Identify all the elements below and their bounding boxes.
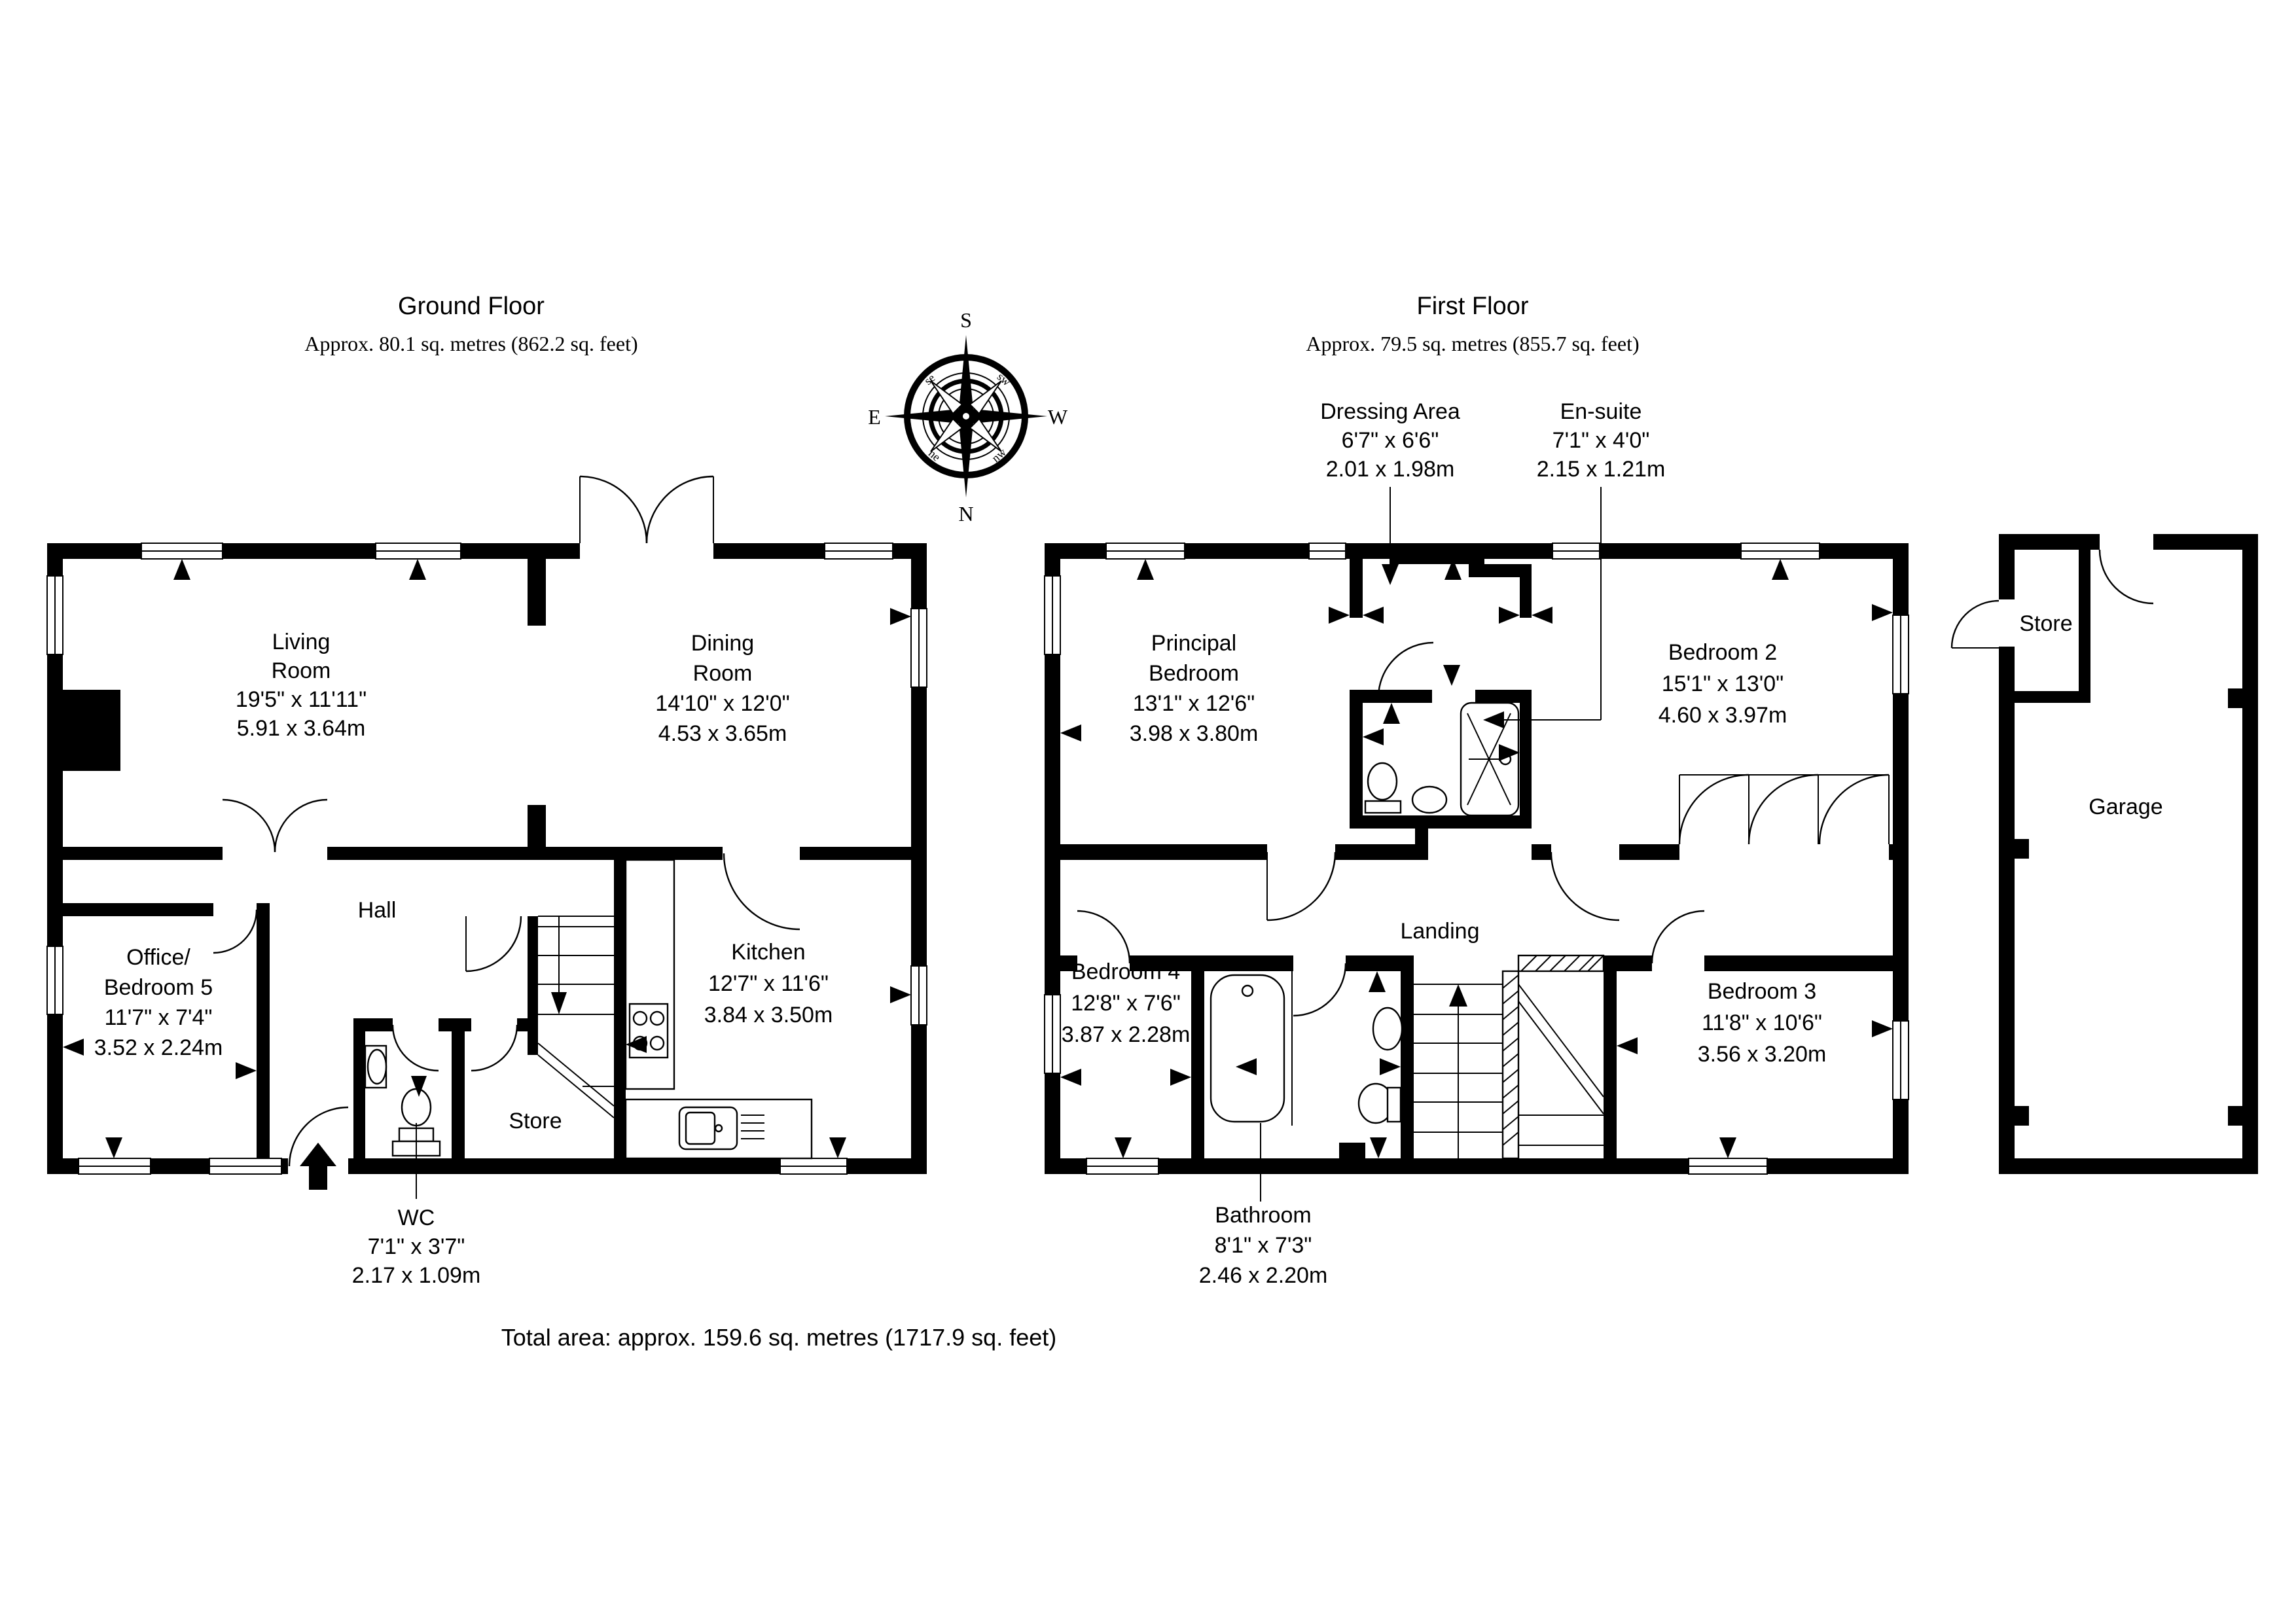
bedroom4-label: Bedroom 4 bbox=[1071, 959, 1180, 984]
compass-east-label: E bbox=[868, 405, 881, 429]
svg-text:6'7" x 6'6": 6'7" x 6'6" bbox=[1342, 428, 1439, 453]
svg-text:11'7" x 7'4": 11'7" x 7'4" bbox=[104, 1005, 212, 1030]
svg-text:Room: Room bbox=[272, 658, 331, 683]
svg-text:3.87 x 2.28m: 3.87 x 2.28m bbox=[1062, 1022, 1191, 1047]
compass-rose-icon: S N W E sw se ne nw bbox=[868, 308, 1068, 526]
first-floor-staircase bbox=[1414, 955, 1604, 1160]
ground-floor-walls bbox=[47, 543, 927, 1174]
wardrobe-door-arc bbox=[1679, 775, 1749, 844]
entrance-arrow bbox=[300, 1143, 336, 1190]
ground-floor-staircase bbox=[538, 916, 614, 1118]
svg-text:8'1" x 7'3": 8'1" x 7'3" bbox=[1215, 1233, 1312, 1258]
svg-text:2.01 x 1.98m: 2.01 x 1.98m bbox=[1326, 457, 1455, 482]
store-ground-label: Store bbox=[509, 1109, 562, 1133]
first-floor-plan: Principal Bedroom 13'1" x 12'6" 3.98 x 3… bbox=[1045, 399, 1909, 1288]
bedroom4-door-arc bbox=[1077, 911, 1130, 963]
floorplan-canvas: Ground Floor Approx. 80.1 sq. metres (86… bbox=[0, 0, 2296, 1623]
svg-text:Bedroom: Bedroom bbox=[1149, 661, 1239, 686]
store-garage-label: Store bbox=[2019, 611, 2072, 636]
living-room-double-door-arc-right bbox=[275, 800, 327, 852]
dining-room-label: Dining bbox=[691, 631, 754, 656]
kitchen-label: Kitchen bbox=[731, 940, 805, 965]
ground-floor-plan: Living Room 19'5" x 11'11" 5.91 x 3.64m … bbox=[47, 476, 927, 1288]
toilet-icon bbox=[402, 1089, 431, 1126]
basin-icon bbox=[1412, 787, 1446, 813]
svg-text:2.17 x 1.09m: 2.17 x 1.09m bbox=[352, 1263, 481, 1288]
garage-plan: Store Garage bbox=[1952, 534, 2258, 1174]
hob-icon bbox=[630, 1004, 668, 1058]
bedroom3-door-arc bbox=[1652, 911, 1704, 963]
garage-store-door-arc bbox=[1952, 601, 1999, 648]
svg-text:3.56 x 3.20m: 3.56 x 3.20m bbox=[1698, 1042, 1827, 1067]
svg-text:2.15 x 1.21m: 2.15 x 1.21m bbox=[1537, 457, 1666, 482]
svg-text:4.60 x 3.97m: 4.60 x 3.97m bbox=[1659, 703, 1787, 728]
principal-bedroom-door-arc bbox=[1267, 852, 1335, 920]
store-door-arc bbox=[471, 1025, 517, 1071]
landing-label: Landing bbox=[1400, 919, 1479, 944]
svg-text:Bedroom 5: Bedroom 5 bbox=[104, 975, 213, 1000]
compass-north-label: N bbox=[958, 502, 973, 526]
living-room-double-door-arc-left bbox=[223, 800, 275, 852]
wc-fixtures bbox=[365, 1046, 440, 1156]
svg-text:4.53 x 3.65m: 4.53 x 3.65m bbox=[658, 721, 787, 746]
svg-text:7'1" x 4'0": 7'1" x 4'0" bbox=[1552, 428, 1650, 453]
ground-floor-wall-arrows bbox=[63, 559, 911, 1190]
first-floor-title: First Floor bbox=[1417, 293, 1529, 320]
svg-text:15'1" x 13'0": 15'1" x 13'0" bbox=[1662, 671, 1784, 696]
wardrobe-door-arc bbox=[1749, 775, 1818, 844]
kitchen-door-arc bbox=[724, 853, 800, 929]
stairs-down-arrow bbox=[551, 992, 567, 1014]
toilet-icon bbox=[1368, 763, 1397, 800]
garage-door-arc bbox=[2100, 550, 2153, 603]
svg-text:11'8" x 10'6": 11'8" x 10'6" bbox=[1702, 1010, 1822, 1035]
svg-text:3.98 x 3.80m: 3.98 x 3.80m bbox=[1130, 721, 1259, 746]
wc-door-arc bbox=[393, 1025, 439, 1071]
wardrobe-door-arc bbox=[1820, 775, 1889, 844]
office-door-arc bbox=[213, 910, 257, 953]
bedroom2-label: Bedroom 2 bbox=[1668, 640, 1777, 665]
patio-door-arc-right bbox=[647, 476, 713, 543]
svg-text:13'1" x 12'6": 13'1" x 12'6" bbox=[1133, 691, 1255, 716]
bedroom3-label: Bedroom 3 bbox=[1708, 979, 1816, 1004]
svg-text:12'8" x 7'6": 12'8" x 7'6" bbox=[1071, 991, 1181, 1016]
ensuite-door-arc bbox=[1378, 643, 1433, 698]
ground-floor-subtitle: Approx. 80.1 sq. metres (862.2 sq. feet) bbox=[304, 332, 637, 355]
patio-door-arc-left bbox=[580, 476, 647, 543]
bathroom-fixtures bbox=[1211, 971, 1402, 1126]
svg-text:3.52 x 2.24m: 3.52 x 2.24m bbox=[94, 1035, 223, 1060]
ground-floor-title: Ground Floor bbox=[398, 293, 545, 320]
dressing-area-label: Dressing Area bbox=[1320, 399, 1460, 424]
wc-label: WC bbox=[398, 1205, 435, 1230]
stairs-up-arrow bbox=[1449, 984, 1467, 1007]
ground-floor-doors bbox=[213, 476, 800, 1166]
svg-text:5.91 x 3.64m: 5.91 x 3.64m bbox=[237, 716, 366, 741]
compass-west-label: W bbox=[1048, 405, 1068, 429]
first-floor-subtitle: Approx. 79.5 sq. metres (855.7 sq. feet) bbox=[1306, 332, 1639, 355]
svg-text:7'1" x 3'7": 7'1" x 3'7" bbox=[368, 1234, 465, 1259]
garage-label: Garage bbox=[2089, 794, 2162, 819]
living-room-label: Living bbox=[272, 630, 331, 654]
svg-text:19'5" x 11'11": 19'5" x 11'11" bbox=[236, 687, 367, 712]
total-area-text: Total area: approx. 159.6 sq. metres (17… bbox=[501, 1324, 1056, 1351]
bathtub-icon bbox=[1211, 975, 1284, 1122]
svg-text:Room: Room bbox=[693, 661, 753, 686]
svg-text:3.84 x 3.50m: 3.84 x 3.50m bbox=[704, 1003, 833, 1027]
ensuite-label: En-suite bbox=[1560, 399, 1642, 424]
principal-bedroom-label: Principal bbox=[1151, 631, 1236, 656]
hall-label: Hall bbox=[358, 898, 397, 923]
basin-icon bbox=[1373, 1008, 1402, 1050]
bathroom-door-arc bbox=[1293, 963, 1346, 1016]
svg-text:2.46 x 2.20m: 2.46 x 2.20m bbox=[1199, 1263, 1328, 1288]
svg-text:12'7" x 11'6": 12'7" x 11'6" bbox=[708, 971, 829, 996]
basin-icon bbox=[368, 1050, 386, 1084]
office-bedroom5-label: Office/ bbox=[126, 945, 190, 970]
compass-south-label: S bbox=[960, 308, 972, 332]
bedroom2-door-arc bbox=[1551, 852, 1619, 920]
bathroom-label: Bathroom bbox=[1215, 1203, 1311, 1228]
svg-text:14'10" x 12'0": 14'10" x 12'0" bbox=[655, 691, 789, 716]
hall-cupboard-door-arc bbox=[466, 916, 521, 971]
